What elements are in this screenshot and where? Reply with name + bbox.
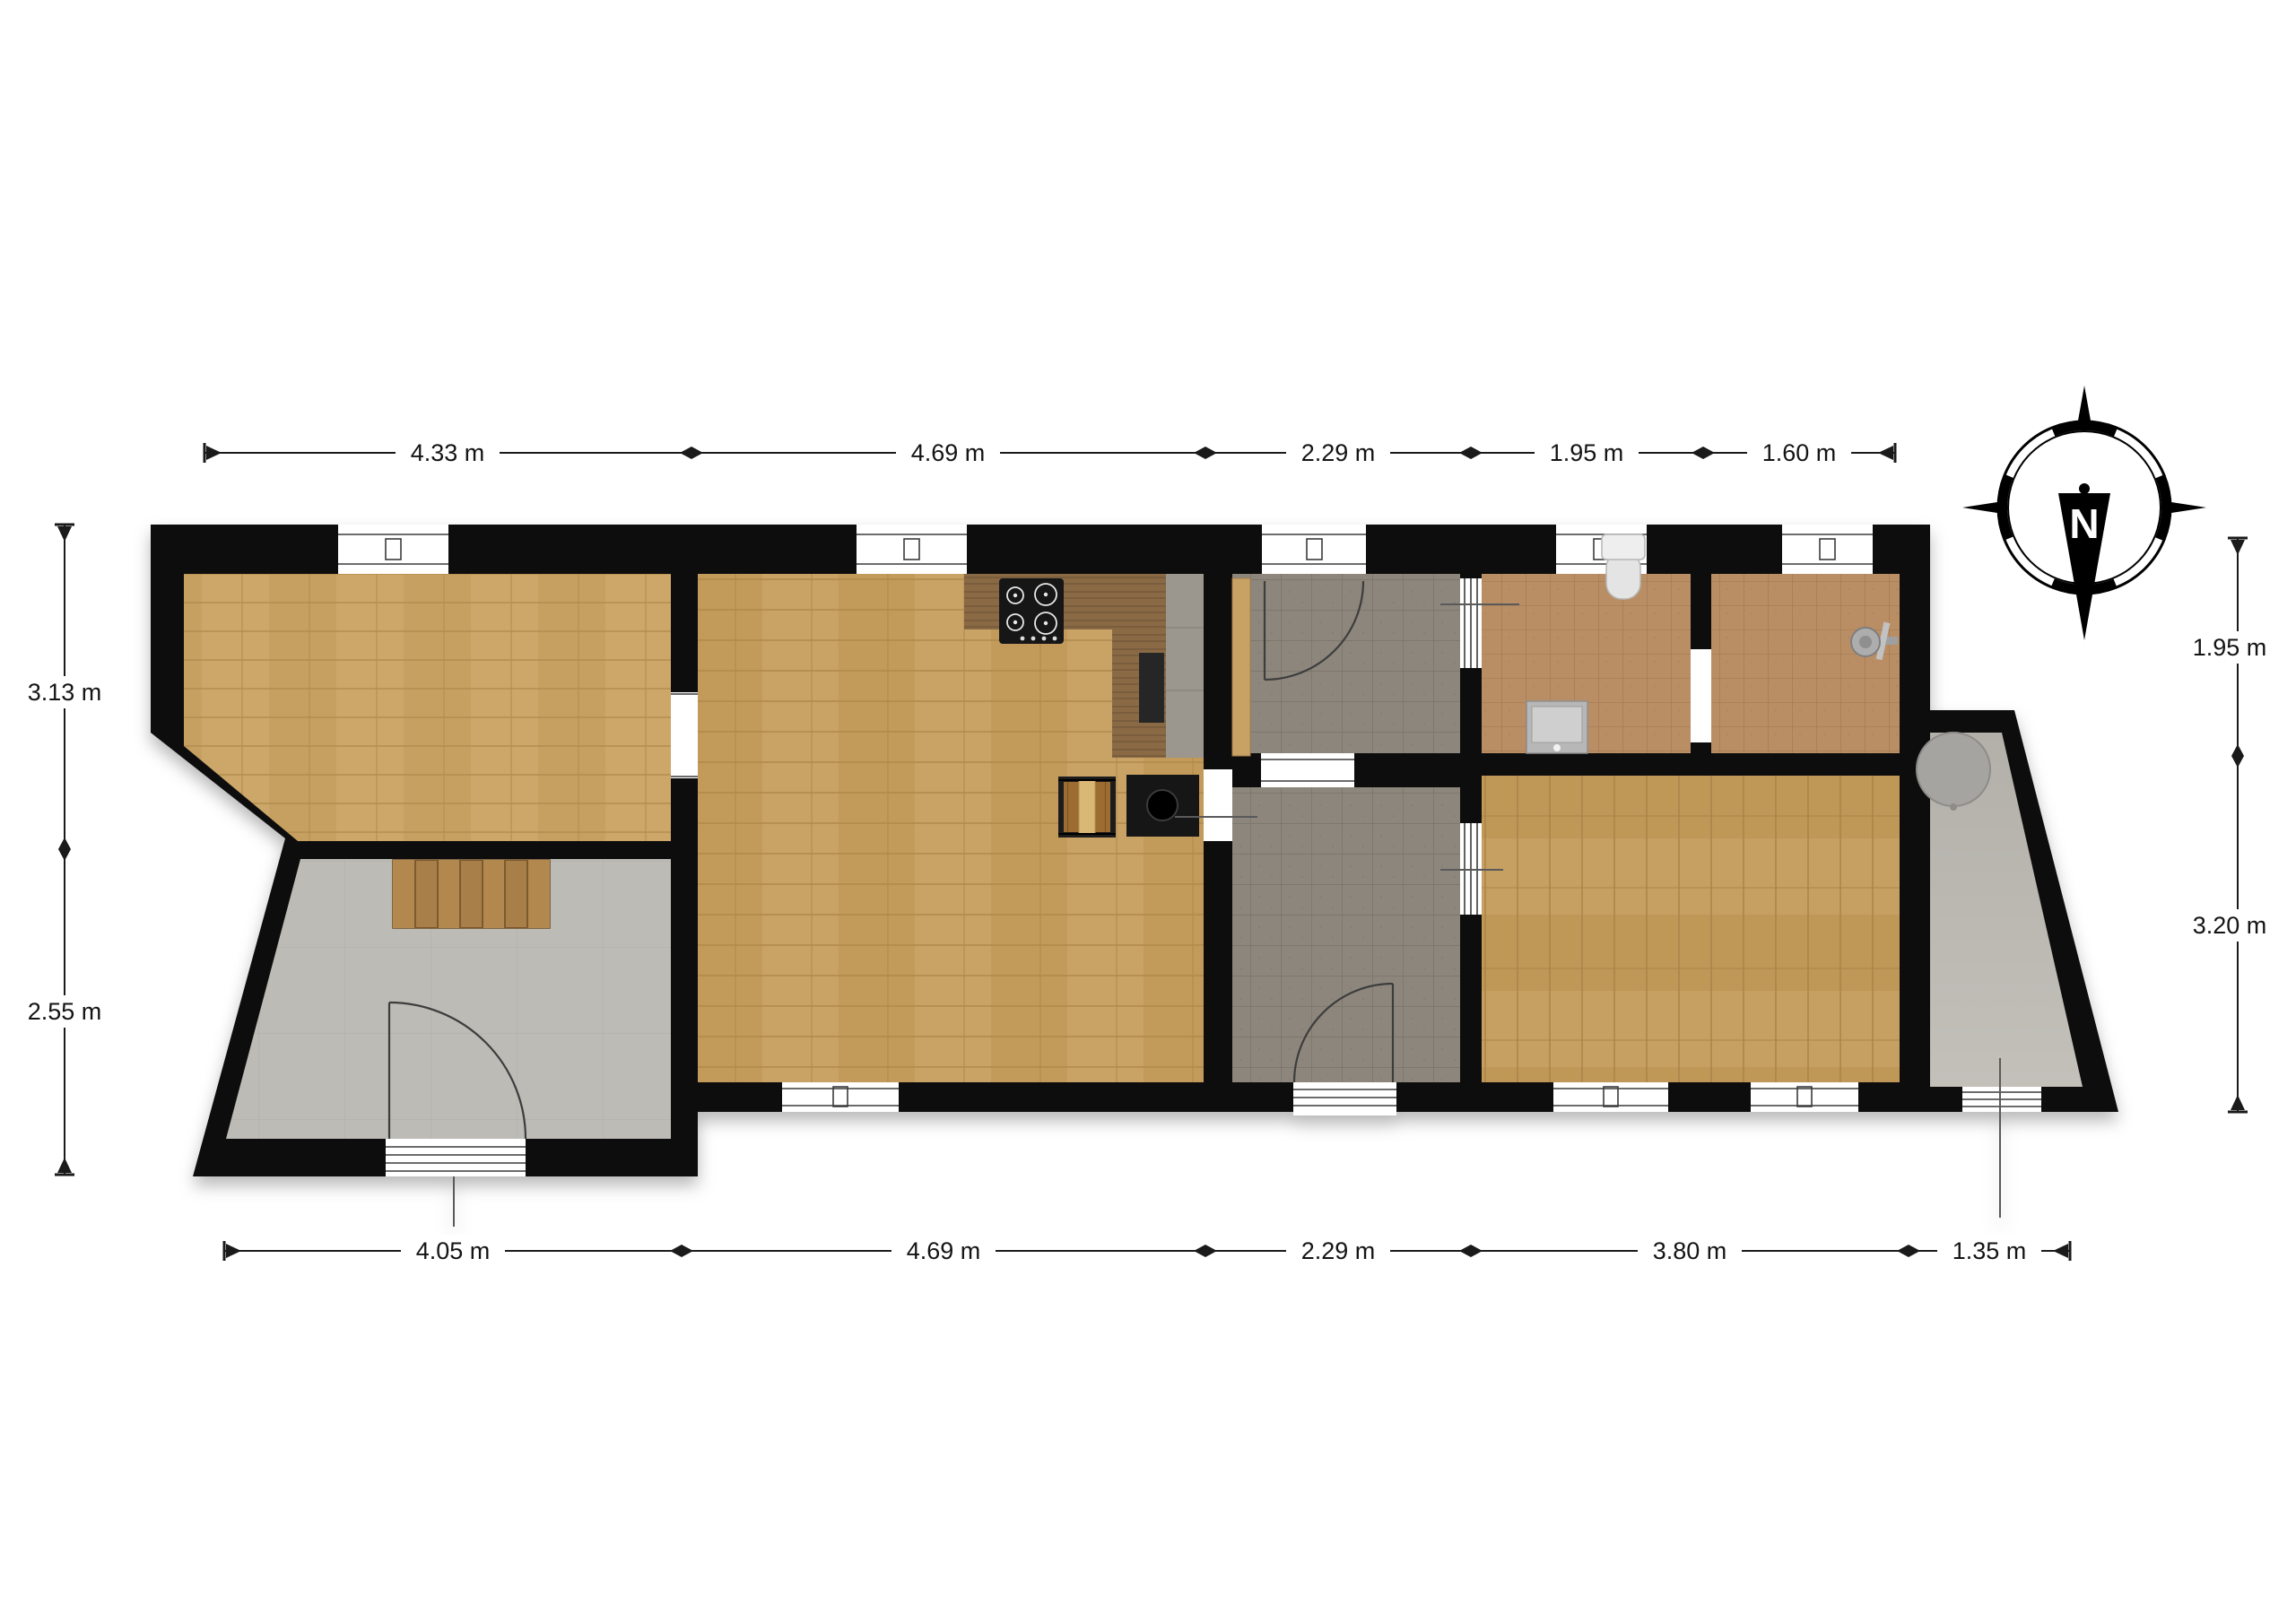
dim-label: 4.33 m [411,439,485,466]
dim-label: 2.29 m [1301,1237,1376,1264]
dim-left: 3.13 m 2.55 m [13,524,117,1176]
wall-bedroom-hall [289,841,698,859]
kitchen-sink [1139,653,1164,723]
toilet [1602,534,1645,599]
wall-bedroom-living [671,525,698,1112]
floorplan-page: 4.33 m 4.69 m 2.29 m 1.95 m 1.60 m 4.05 … [0,0,2296,1623]
dim-label: 3.13 m [28,679,102,706]
wall-living-hallways [1204,574,1232,1112]
dim-label: 1.95 m [1550,439,1624,466]
door-living-hallway [1204,769,1232,841]
dim-label: 1.35 m [1952,1237,2027,1264]
compass-north-label: N [2069,500,2099,547]
floor-bedroom-top-left [184,574,671,841]
door-hallway-lower-bottom [1293,1082,1396,1115]
floor-hallway-upper [1232,574,1460,753]
entry-hall-front-door [386,1139,526,1176]
dim-label: 1.95 m [2193,634,2267,661]
floor-shower-room [1711,574,1900,753]
window-hallway-bathroom [1460,578,1482,668]
floor-bedroom-right [1482,776,1900,1082]
hallway-wood-strip [1232,578,1250,756]
building [151,525,2118,1227]
entry-door-top [1262,525,1366,574]
dim-label: 4.69 m [911,439,986,466]
window-shower-top [1782,525,1873,574]
dim-label: 1.60 m [1762,439,1837,466]
washbasin [1526,701,1587,753]
door-bedroom-living [671,692,698,778]
passage-hallways [1261,753,1354,787]
window-annex-bottom [1962,1087,2041,1112]
floorplan-drawing: 4.33 m 4.69 m 2.29 m 1.95 m 1.60 m 4.05 … [0,0,2296,1623]
dim-label: 3.20 m [2193,912,2267,939]
dim-top: 4.33 m 4.69 m 2.29 m 1.95 m 1.60 m [204,437,1897,469]
window-bedroom-top [338,525,448,574]
staircase [393,860,550,928]
dim-label: 4.05 m [416,1237,491,1264]
gas-hob [999,578,1064,644]
window-living-top [857,525,967,574]
window-bedroom-right-bottom-1 [1553,1082,1668,1112]
dim-right: 1.95 m 3.20 m [2178,537,2282,1114]
window-living-bottom [782,1082,899,1112]
door-bathroom-shower [1691,649,1711,742]
dim-label: 4.69 m [907,1237,981,1264]
window-bedroom-right-bottom-2 [1751,1082,1858,1112]
dim-bottom: 4.05 m 4.69 m 2.29 m 3.80 m 1.35 m [223,1235,2072,1267]
dim-label: 3.80 m [1653,1237,1727,1264]
log-basket [1058,777,1116,838]
dim-label: 2.55 m [28,998,102,1025]
kitchen-island [1126,775,1199,837]
compass-rose-icon: N [1962,386,2206,640]
dim-label: 2.29 m [1301,439,1376,466]
floor-hallway-lower [1232,787,1460,1082]
